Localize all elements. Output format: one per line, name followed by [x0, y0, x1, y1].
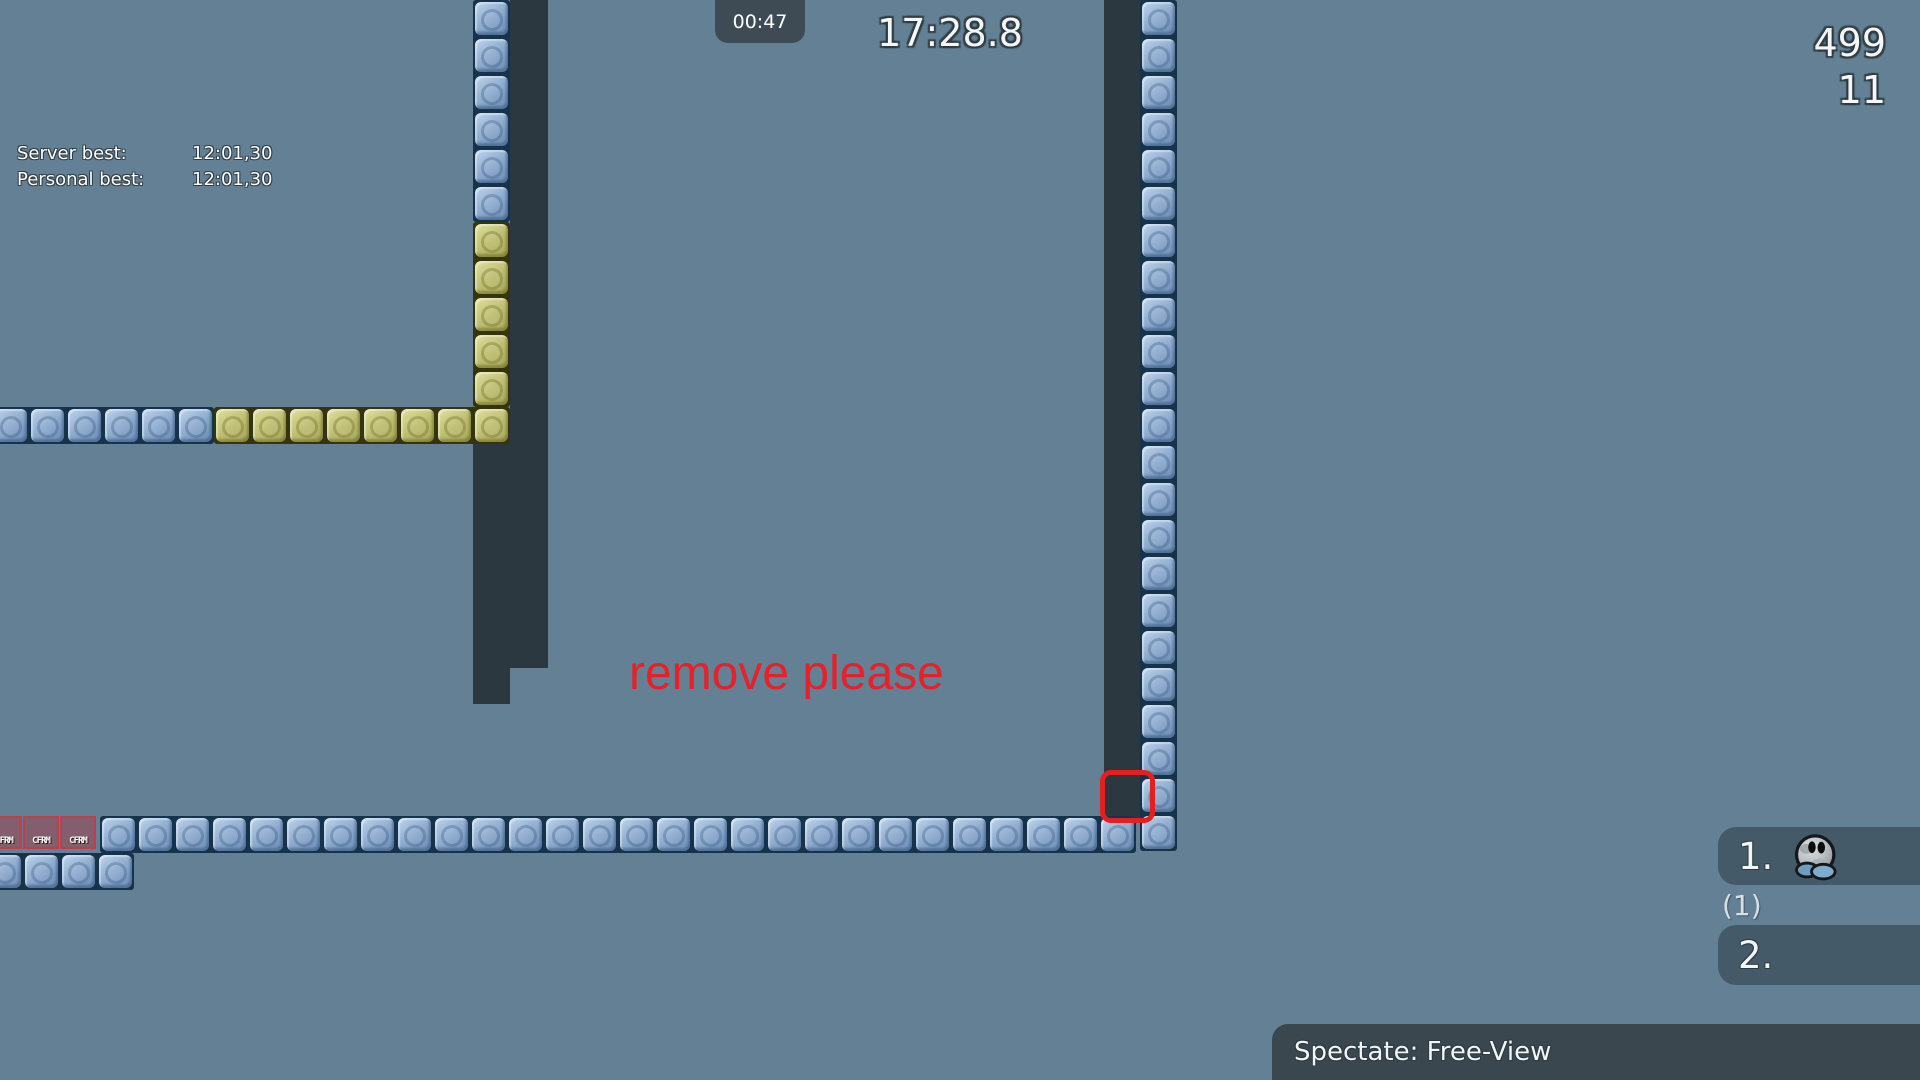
tile-blue — [1142, 224, 1175, 257]
wall-block — [510, 0, 548, 668]
tile-blue — [1142, 594, 1175, 627]
tile-blue — [475, 150, 508, 183]
tile-blue — [1142, 557, 1175, 590]
tile-blue — [805, 818, 838, 851]
tile-yellow — [290, 409, 323, 442]
tile-blue — [1142, 261, 1175, 294]
tile-blue — [213, 818, 246, 851]
tile-blue — [105, 409, 138, 442]
race-timer: 17:28.8 — [780, 11, 1120, 55]
wall-block — [1104, 0, 1142, 818]
tile-run-blue — [0, 407, 214, 444]
tile-blue — [1142, 668, 1175, 701]
tile-blue — [583, 818, 616, 851]
tile-blue — [1142, 150, 1175, 183]
tile-yellow — [438, 409, 471, 442]
tile-blue — [1142, 76, 1175, 109]
tile-blue — [102, 818, 135, 851]
tile-blue — [1142, 113, 1175, 146]
tile-yellow — [475, 372, 508, 405]
editor-marker-box — [1100, 770, 1155, 823]
tile-run-yellow — [214, 407, 510, 444]
ping-counter: 11 — [1813, 67, 1886, 114]
tile-blue — [1142, 409, 1175, 442]
tile-cfrm: CFRM — [0, 816, 22, 849]
tile-blue — [287, 818, 320, 851]
tile-blue — [768, 818, 801, 851]
tile-blue — [731, 818, 764, 851]
wall-block — [473, 442, 510, 704]
scoreboard-row-1: 1. — [1718, 827, 1920, 885]
tile-run-blue — [1140, 0, 1177, 851]
tile-blue — [1142, 446, 1175, 479]
tile-run-cfrm: CFRMCFRMCFRM — [0, 816, 96, 849]
scoreboard-row-2: 2. — [1718, 925, 1920, 985]
net-stats: 499 11 — [1813, 20, 1886, 114]
tile-blue — [475, 76, 508, 109]
tile-blue — [176, 818, 209, 851]
tile-blue — [1027, 818, 1060, 851]
tile-yellow — [475, 409, 508, 442]
tile-yellow — [364, 409, 397, 442]
tile-blue — [1142, 520, 1175, 553]
tile-cfrm: CFRM — [60, 816, 96, 849]
tile-blue — [1142, 705, 1175, 738]
tile-blue — [1142, 2, 1175, 35]
tile-blue — [475, 39, 508, 72]
tile-blue — [142, 409, 175, 442]
tile-blue — [916, 818, 949, 851]
tile-blue — [25, 855, 58, 888]
tile-run-blue — [100, 816, 1136, 853]
server-best-value: 12:01,30 — [192, 143, 273, 164]
tile-blue — [139, 818, 172, 851]
tile-blue — [546, 818, 579, 851]
tile-blue — [620, 818, 653, 851]
tile-blue — [694, 818, 727, 851]
spectate-mode-label: Spectate: Free-View — [1294, 1037, 1551, 1067]
server-best-label: Server best: — [17, 143, 127, 164]
tile-blue — [990, 818, 1023, 851]
spectate-bar[interactable]: Spectate: Free-View — [1272, 1024, 1920, 1080]
tile-blue — [179, 409, 212, 442]
tile-blue — [475, 113, 508, 146]
tile-run-blue — [473, 0, 510, 222]
game-viewport: CFRMCFRMCFRM remove please Server best: … — [0, 0, 1920, 1080]
tile-blue — [1142, 39, 1175, 72]
tile-yellow — [475, 335, 508, 368]
tile-run-yellow — [473, 222, 510, 407]
personal-best-value: 12:01,30 — [192, 169, 273, 190]
spectator-count: (1) — [1722, 889, 1762, 922]
tile-yellow — [327, 409, 360, 442]
fps-counter: 499 — [1813, 20, 1886, 67]
tile-blue — [842, 818, 875, 851]
player-avatar — [1790, 831, 1842, 887]
tile-cfrm: CFRM — [23, 816, 59, 849]
tile-blue — [1142, 631, 1175, 664]
tile-blue — [324, 818, 357, 851]
tile-blue — [0, 409, 27, 442]
tile-blue — [953, 818, 986, 851]
tile-blue — [250, 818, 283, 851]
tile-yellow — [401, 409, 434, 442]
tile-blue — [657, 818, 690, 851]
tile-blue — [475, 187, 508, 220]
tile-blue — [879, 818, 912, 851]
tile-blue — [472, 818, 505, 851]
tile-blue — [475, 2, 508, 35]
rank-label: 2. — [1738, 934, 1773, 977]
tile-blue — [1064, 818, 1097, 851]
tile-blue — [1142, 335, 1175, 368]
tile-blue — [1142, 187, 1175, 220]
tile-yellow — [475, 298, 508, 331]
map-annotation-text: remove please — [629, 646, 944, 701]
tile-blue — [68, 409, 101, 442]
tile-blue — [361, 818, 394, 851]
rank-label: 1. — [1738, 835, 1773, 878]
tile-blue — [99, 855, 132, 888]
tile-run-blue — [0, 853, 134, 890]
tee-avatar-icon — [1790, 831, 1842, 883]
tile-blue — [0, 855, 21, 888]
tile-blue — [1142, 298, 1175, 331]
personal-best-label: Personal best: — [17, 169, 144, 190]
tile-blue — [398, 818, 431, 851]
tile-blue — [62, 855, 95, 888]
tile-yellow — [253, 409, 286, 442]
tile-blue — [1142, 372, 1175, 405]
tile-blue — [509, 818, 542, 851]
tile-yellow — [216, 409, 249, 442]
tile-blue — [1142, 483, 1175, 516]
tile-yellow — [475, 261, 508, 294]
tile-blue — [435, 818, 468, 851]
tile-yellow — [475, 224, 508, 257]
tile-blue — [31, 409, 64, 442]
